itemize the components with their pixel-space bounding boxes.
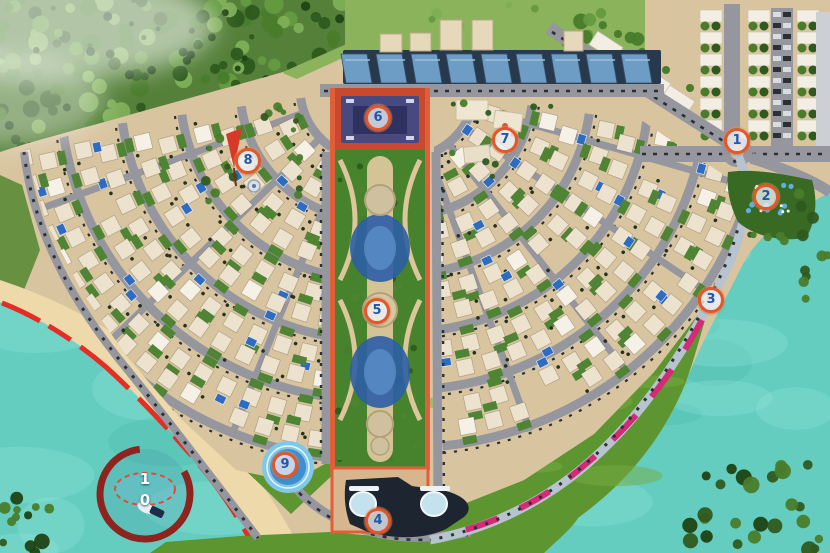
map-marker-5: 5 <box>364 298 390 324</box>
map-marker-10-digit-1: 1 <box>140 470 150 488</box>
map-marker-4: 4 <box>365 508 391 534</box>
map-marker-2: 2 <box>753 184 779 210</box>
map-marker-8: 8 <box>235 148 261 174</box>
map-marker-1: 1 <box>724 128 750 154</box>
masterplan-map: 12345678910 <box>0 0 830 553</box>
numbered-markers-layer: 12345678910 <box>0 0 830 553</box>
map-marker-6: 6 <box>365 105 391 131</box>
map-marker-3: 3 <box>698 287 724 313</box>
map-marker-7: 7 <box>492 127 518 153</box>
map-marker-10-digit-0: 0 <box>140 491 150 509</box>
map-marker-9: 9 <box>272 452 298 478</box>
